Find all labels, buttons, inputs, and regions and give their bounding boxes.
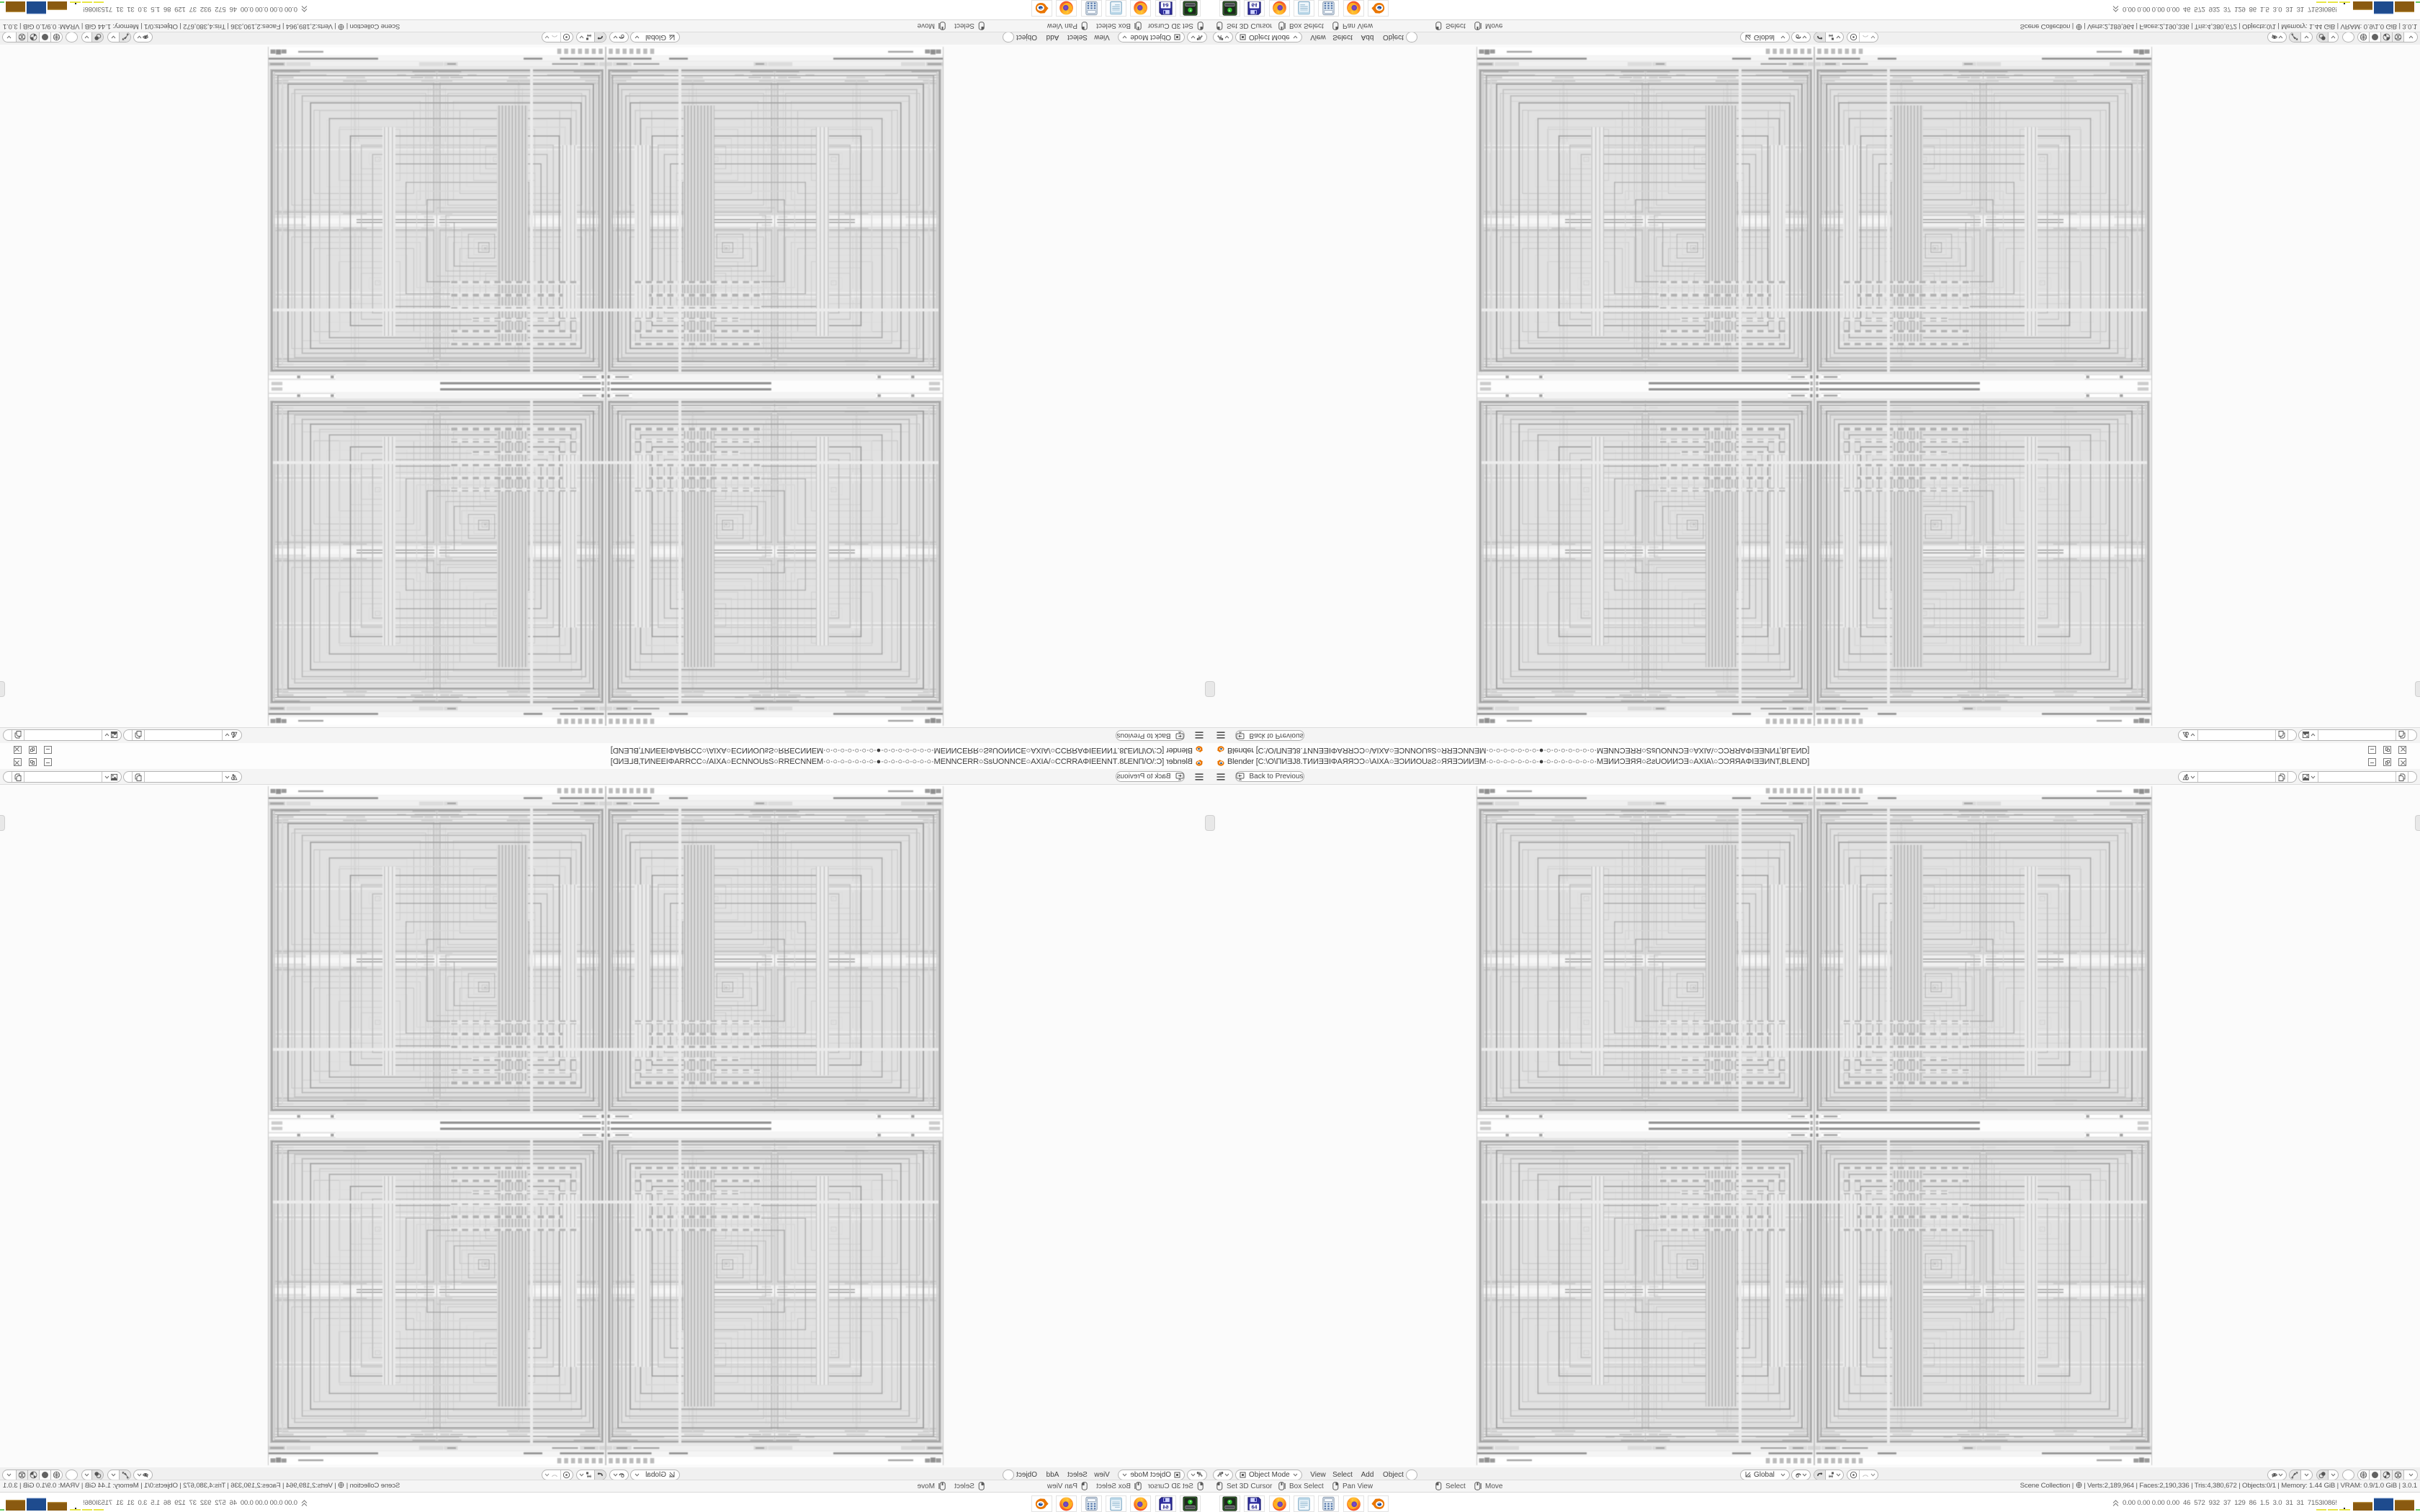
svg-text:64: 64 — [1162, 1504, 1168, 1510]
svg-text:64: 64 — [1252, 2, 1258, 8]
svg-text:64: 64 — [1162, 2, 1168, 8]
svg-text:64: 64 — [1252, 1504, 1258, 1510]
